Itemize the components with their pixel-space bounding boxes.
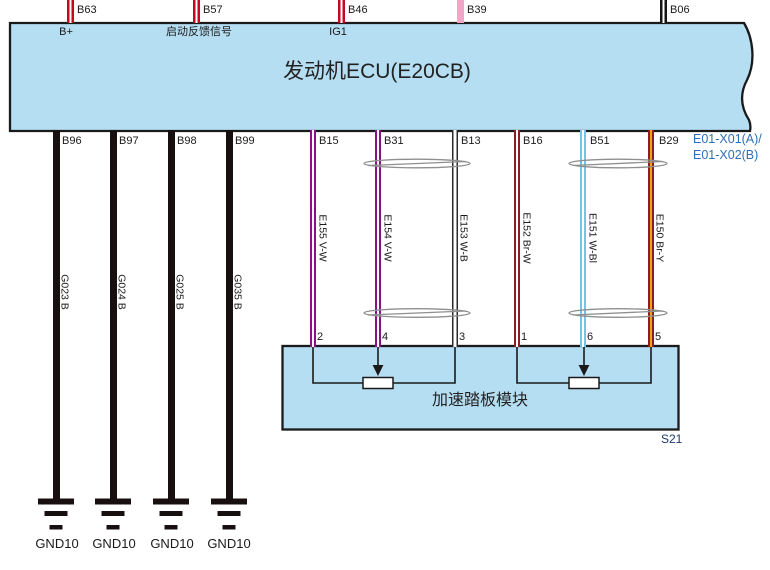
pin-label-b98: B98 — [177, 135, 197, 147]
wire-label-e154: E154 V-W — [382, 214, 393, 261]
ground-icon — [211, 499, 247, 530]
wire-label-e153: E153 W-B — [458, 214, 469, 262]
module-pin-2: 2 — [317, 331, 323, 343]
wire-b63-red — [67, 0, 74, 23]
poti1-wiper-arrow-icon — [373, 365, 384, 376]
wire-b06-black-white — [660, 0, 667, 23]
ecu-title: 发动机ECU(E20CB) — [283, 60, 471, 83]
wire-g025-black — [168, 130, 175, 503]
wire-e152-brown-white — [514, 130, 520, 347]
wiring-diagram: 发动机ECU(E20CB) B63 B57 B46 B39 B06 B+ 启动反… — [0, 0, 770, 570]
wire-e155-violet-white — [310, 130, 316, 347]
wire-b46-red — [338, 0, 345, 23]
wire-b57-red — [193, 0, 200, 23]
pedal-module-title: 加速踏板模块 — [432, 392, 528, 410]
ground-icon — [95, 499, 131, 530]
connector-ref-line1: E01-X01(A)/ — [693, 133, 762, 147]
wire-label-g023b: G023 B — [59, 274, 70, 310]
pin-label-b57: B57 — [203, 4, 223, 16]
pin-label-b16: B16 — [523, 135, 543, 147]
module-pin-6: 6 — [587, 331, 593, 343]
pin-label-b31: B31 — [384, 135, 404, 147]
wire-g023-black — [53, 130, 60, 503]
poti2-right-lead — [599, 347, 651, 383]
pin-label-b97: B97 — [119, 135, 139, 147]
poti2-resistor — [569, 378, 599, 389]
pedal-module-box — [283, 346, 679, 430]
poti1-left-lead — [313, 347, 363, 383]
pin-label-b63: B63 — [77, 4, 97, 16]
ground-label-3: GND10 — [150, 537, 193, 551]
pin-label-b29: B29 — [659, 135, 679, 147]
pin-label-b96: B96 — [62, 135, 82, 147]
ground-label-4: GND10 — [207, 537, 250, 551]
pin-label-b13: B13 — [461, 135, 481, 147]
wire-g035-black — [226, 130, 233, 503]
pin-label-b06: B06 — [670, 4, 690, 16]
ground-label-1: GND10 — [35, 537, 78, 551]
pin-label-b99: B99 — [235, 135, 255, 147]
poti2-wiper-arrow-icon — [579, 365, 590, 376]
module-pin-1: 1 — [521, 331, 527, 343]
connector-ref-line2: E01-X02(B) — [693, 149, 758, 163]
wire-label-e155: E155 V-W — [317, 214, 328, 261]
module-pin-3: 3 — [459, 331, 465, 343]
wire-label-g035b: G035 B — [232, 274, 243, 310]
function-label-start-feedback: 启动反馈信号 — [166, 26, 232, 38]
poti1-right-lead — [393, 347, 455, 383]
poti1-resistor — [363, 378, 393, 389]
ground-icon — [38, 499, 74, 530]
wire-e151-white-blue — [580, 130, 586, 347]
module-pin-5: 5 — [655, 331, 661, 343]
pin-label-b39: B39 — [467, 4, 487, 16]
function-label-b-plus: B+ — [59, 26, 73, 38]
pin-label-b15: B15 — [319, 135, 339, 147]
ground-label-2: GND10 — [92, 537, 135, 551]
pedal-potentiometer-circuits — [313, 347, 651, 383]
pin-label-b51: B51 — [590, 135, 610, 147]
ground-icon — [153, 499, 189, 530]
function-label-ig1: IG1 — [329, 26, 347, 38]
wire-label-g024b: G024 B — [116, 274, 127, 310]
pin-label-b46: B46 — [348, 4, 368, 16]
wire-g024-black — [110, 130, 117, 503]
ground-symbols — [38, 499, 247, 530]
wire-label-e152: E152 Br-W — [521, 212, 532, 263]
module-pin-4: 4 — [382, 331, 388, 343]
wire-b39-pink — [457, 0, 464, 23]
wire-label-g025b: G025 B — [174, 274, 185, 310]
wire-label-e150: E150 Br-Y — [654, 214, 665, 262]
wire-e154-violet-white — [375, 130, 381, 347]
poti2-left-lead — [517, 347, 569, 383]
wire-label-e151: E151 W-Bl — [587, 213, 598, 263]
module-ref-s21: S21 — [661, 433, 682, 446]
